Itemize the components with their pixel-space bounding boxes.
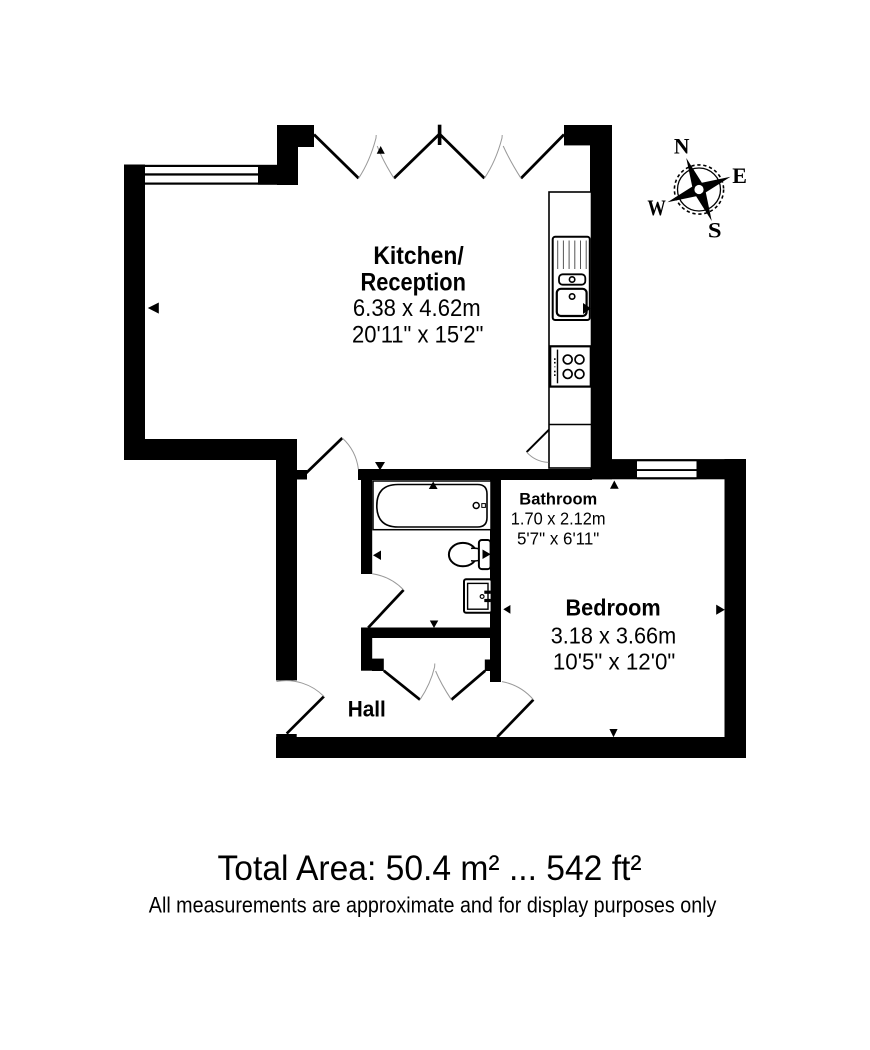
svg-text:Bathroom: Bathroom	[519, 489, 597, 508]
svg-text:Hall: Hall	[348, 697, 386, 722]
svg-text:S: S	[708, 218, 722, 243]
svg-text:N: N	[674, 134, 690, 159]
svg-text:All measurements are approxima: All measurements are approximate and for…	[149, 892, 717, 917]
svg-text:3.18 x 3.66m: 3.18 x 3.66m	[551, 623, 677, 649]
svg-text:1.70 x 2.12m: 1.70 x 2.12m	[511, 508, 606, 528]
svg-text:W: W	[647, 195, 666, 220]
svg-text:6.38 x 4.62m: 6.38 x 4.62m	[353, 295, 481, 322]
svg-text:5'7" x 6'11": 5'7" x 6'11"	[517, 529, 599, 549]
svg-text:Total Area: 50.4 m² ... 542 ft: Total Area: 50.4 m² ... 542 ft²	[218, 848, 642, 888]
svg-text:10'5" x 12'0": 10'5" x 12'0"	[553, 648, 675, 674]
svg-text:E: E	[732, 163, 747, 188]
svg-text:Reception: Reception	[361, 269, 466, 297]
svg-text:Kitchen/: Kitchen/	[373, 242, 463, 270]
svg-text:20'11" x 15'2": 20'11" x 15'2"	[352, 322, 483, 349]
svg-text:Bedroom: Bedroom	[566, 595, 661, 621]
